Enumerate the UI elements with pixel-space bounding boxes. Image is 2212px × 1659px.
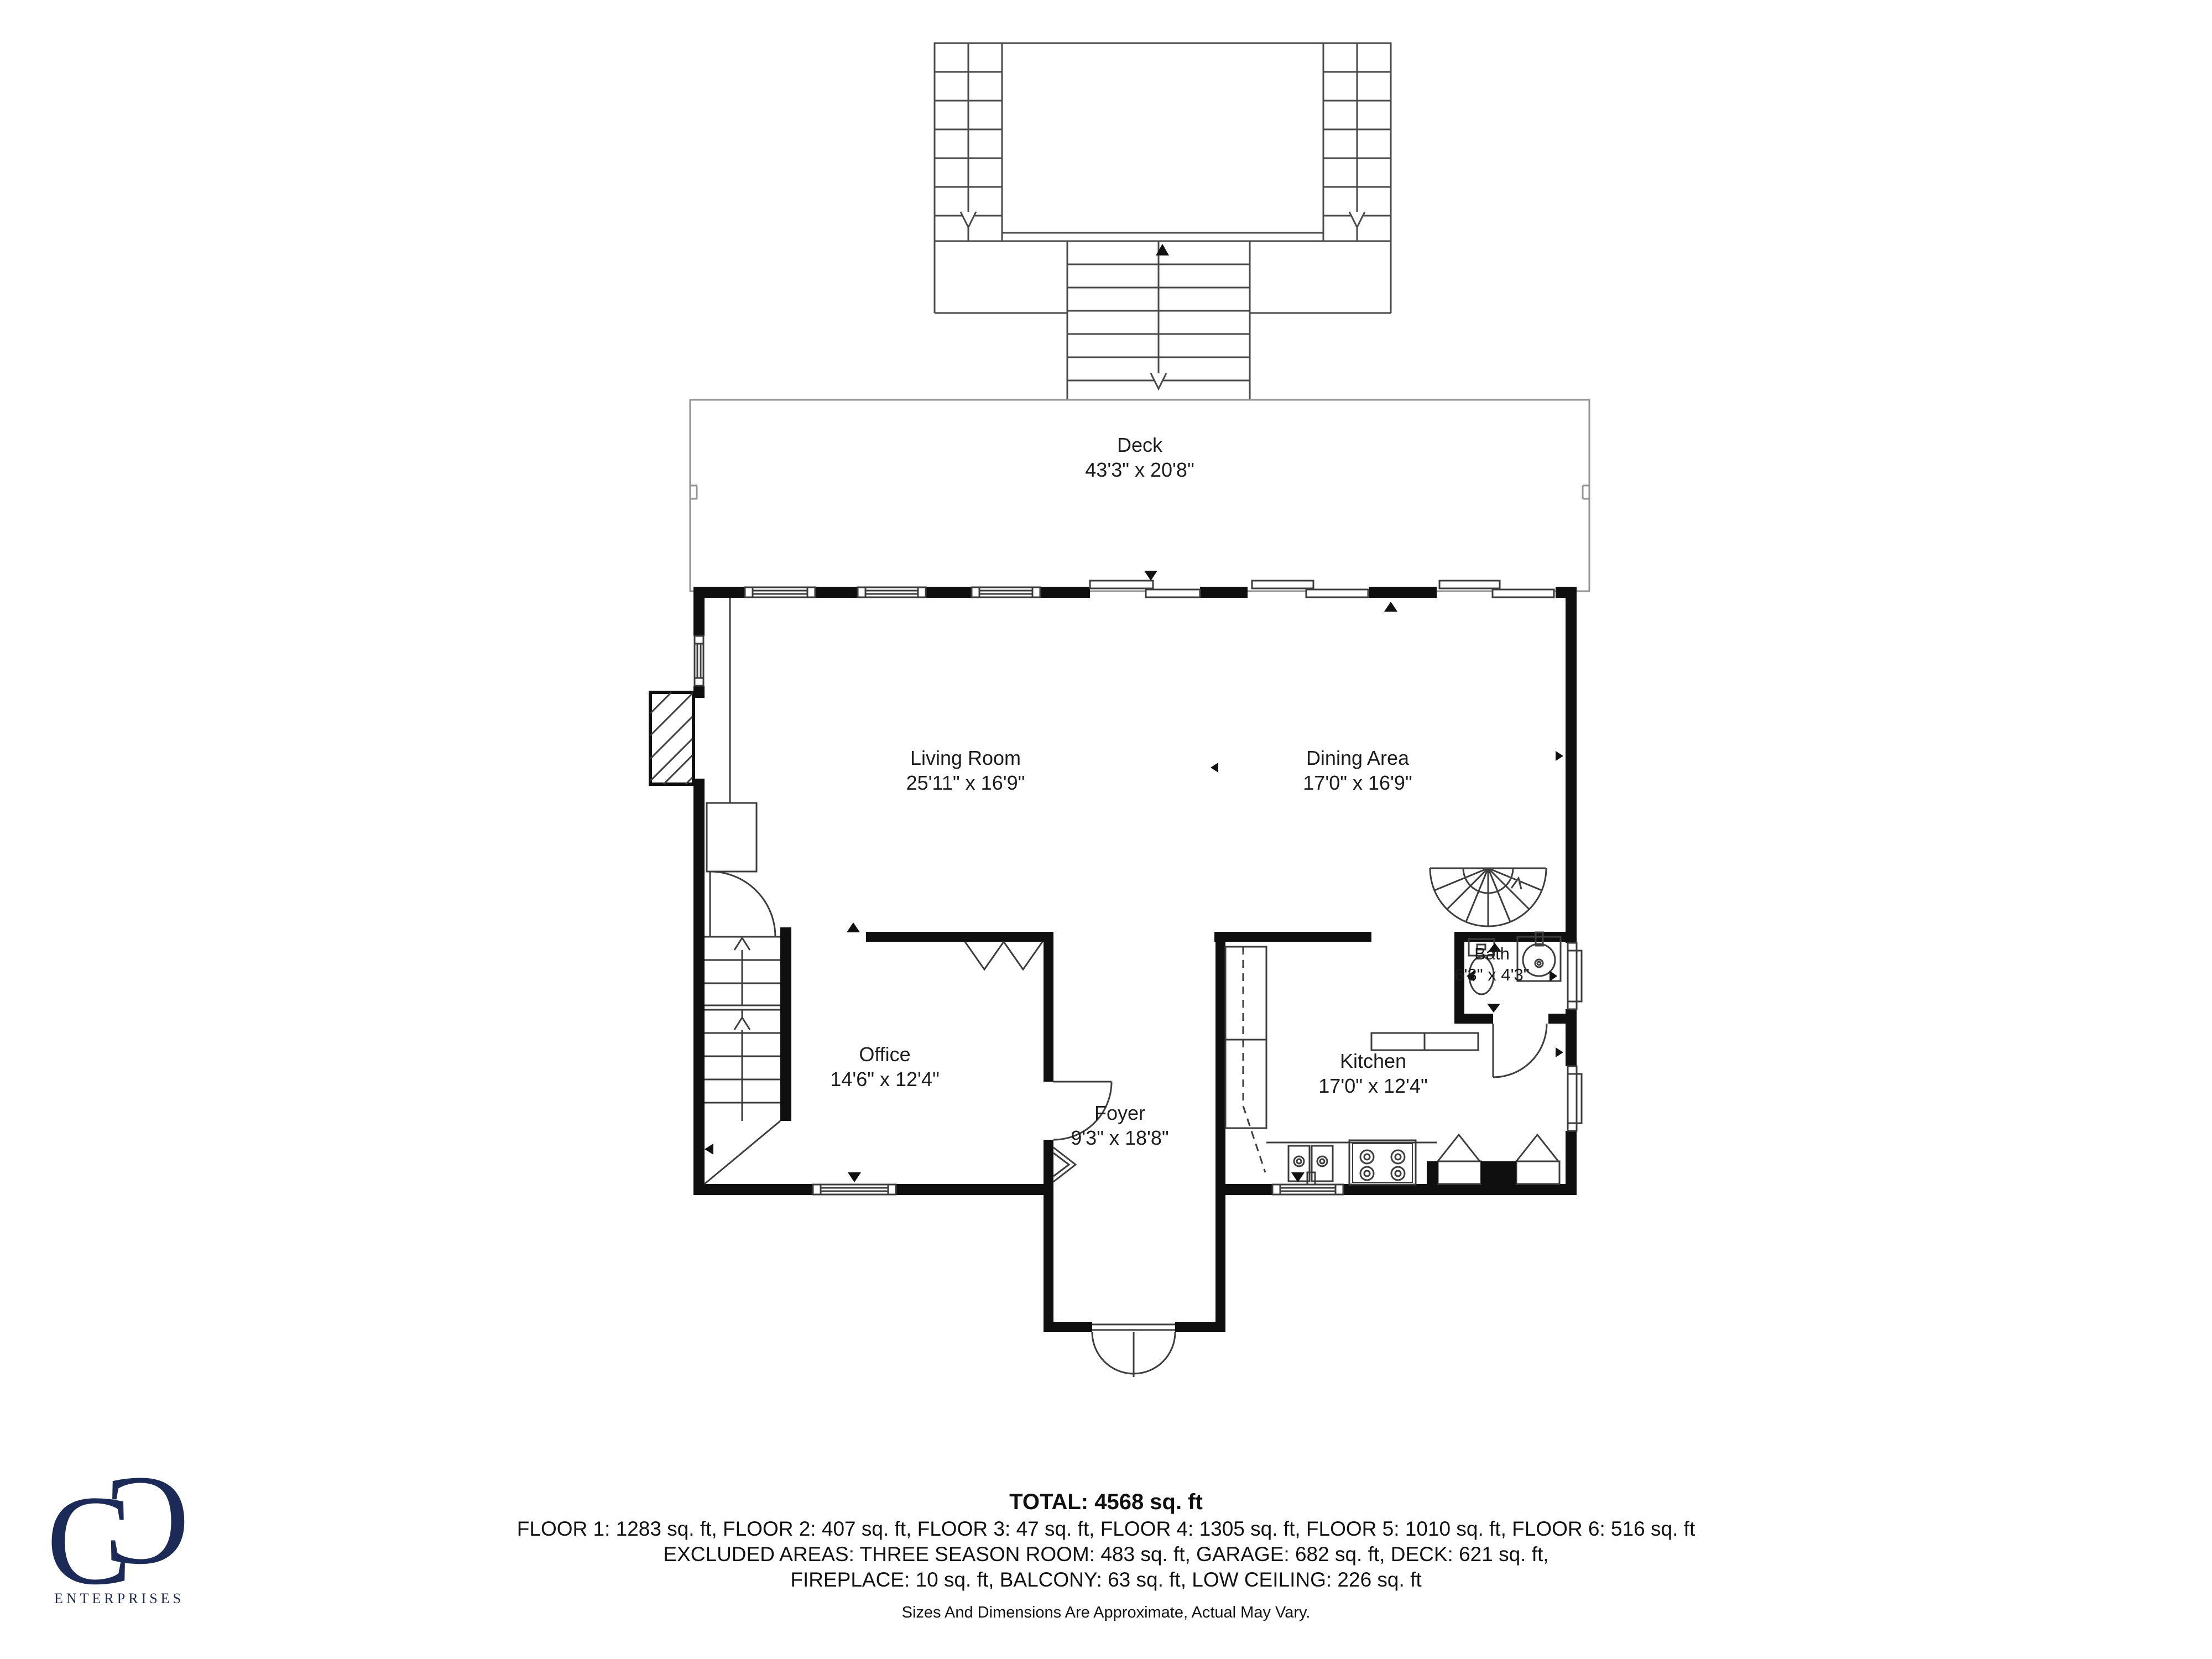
- main-exterior-staircase: [1067, 241, 1250, 400]
- balcony: [1002, 43, 1323, 241]
- company-logo: C C ENTERPRISES: [39, 1454, 216, 1631]
- entry-threshold: [1092, 1324, 1175, 1330]
- room-label-bath: Bath 6'3" x 4'3": [1454, 943, 1530, 985]
- room-label-living-room: Living Room 25'11" x 16'9": [906, 745, 1025, 795]
- peninsula-counter: [1371, 1033, 1478, 1050]
- room-dims: 9'3" x 18'8": [1071, 1125, 1168, 1150]
- marker-window-left-down: [848, 1172, 861, 1182]
- sliding-door-2: [1252, 581, 1368, 597]
- marker-office-opening: [847, 922, 860, 932]
- floorplan-drawing: [0, 0, 2212, 1659]
- marker-stairs-left: [705, 1144, 713, 1155]
- marker-livingroom-up: [1384, 602, 1397, 612]
- room-dims: 17'0" x 12'4": [1318, 1073, 1427, 1098]
- sliding-door-1: [1090, 581, 1200, 597]
- bath-door-arc: [1493, 1024, 1547, 1077]
- window-west: [695, 636, 703, 686]
- room-name: Kitchen: [1318, 1048, 1427, 1073]
- pantry-bifold-doors: [1427, 1135, 1559, 1184]
- summary-floors: FLOOR 1: 1283 sq. ft, FLOOR 2: 407 sq. f…: [517, 1517, 1695, 1541]
- refrigerator-pantry: [1225, 947, 1266, 1172]
- stair-door-arc: [710, 872, 775, 937]
- marker-deck-door-down: [1144, 571, 1157, 581]
- entry-door-arc: [1092, 1332, 1175, 1377]
- basement-staircase: [705, 803, 780, 1184]
- room-name: Living Room: [906, 745, 1025, 770]
- upper-right-staircase: [1323, 43, 1391, 241]
- deck-outline: [690, 400, 1589, 591]
- stove: [1349, 1140, 1416, 1185]
- window-top-2: [858, 587, 926, 597]
- upper-balcony-structure: [935, 43, 1391, 400]
- marker-bath-right: [1550, 971, 1557, 982]
- office-closet-bifold-doors: [965, 942, 1042, 969]
- window-kitchen-east: [1568, 1066, 1582, 1131]
- logo-company-name: ENTERPRISES: [54, 1590, 184, 1607]
- room-name: Office: [830, 1042, 939, 1067]
- exterior-walls: [693, 587, 1577, 1332]
- room-dims: 6'3" x 4'3": [1454, 964, 1530, 985]
- window-kitchen-bottom: [1272, 1185, 1343, 1194]
- room-name: Dining Area: [1303, 745, 1412, 770]
- marker-dining-left: [1211, 763, 1218, 773]
- marker-dining-right: [1556, 751, 1563, 761]
- summary-excluded-2: FIREPLACE: 10 sq. ft, BALCONY: 63 sq. ft…: [790, 1568, 1421, 1592]
- summary-disclaimer: Sizes And Dimensions Are Approximate, Ac…: [902, 1604, 1311, 1622]
- logo-monogram-c-right: C: [104, 1456, 190, 1584]
- room-name: Bath: [1454, 943, 1530, 964]
- room-name: Deck: [1085, 432, 1194, 457]
- room-label-office: Office 14'6" x 12'4": [830, 1042, 939, 1092]
- sliding-door-3: [1439, 581, 1554, 597]
- summary-excluded-1: EXCLUDED AREAS: THREE SEASON ROOM: 483 s…: [663, 1543, 1548, 1566]
- window-bath-east: [1568, 943, 1582, 1009]
- windows: [695, 581, 1582, 1330]
- foyer-closet-bifold-doors: [1053, 1147, 1076, 1182]
- summary-total: TOTAL: 4568 sq. ft: [1009, 1490, 1203, 1515]
- room-dims: 25'11" x 16'9": [906, 770, 1025, 795]
- room-label-dining-area: Dining Area 17'0" x 16'9": [1303, 745, 1412, 795]
- spiral-staircase: [1430, 868, 1546, 926]
- room-dims: 17'0" x 16'9": [1303, 770, 1412, 795]
- fireplace: [650, 692, 693, 784]
- room-name: Foyer: [1071, 1100, 1168, 1125]
- room-label-deck: Deck 43'3" x 20'8": [1085, 432, 1194, 482]
- room-dims: 43'3" x 20'8": [1085, 457, 1194, 482]
- stair-closet: [707, 803, 757, 872]
- floorplan-page: Deck 43'3" x 20'8" Living Room 25'11" x …: [0, 0, 2212, 1659]
- marker-kitchen-right: [1556, 1047, 1563, 1057]
- room-dims: 14'6" x 12'4": [830, 1067, 939, 1092]
- room-label-foyer: Foyer 9'3" x 18'8": [1071, 1100, 1168, 1150]
- deck-edge-ticks: [690, 486, 1589, 499]
- marker-bath-down: [1487, 1004, 1500, 1013]
- window-top-1: [745, 587, 815, 597]
- kitchen-sink: [1288, 1146, 1333, 1185]
- room-label-kitchen: Kitchen 17'0" x 12'4": [1318, 1048, 1427, 1098]
- upper-left-staircase: [935, 43, 1002, 241]
- window-bottom-left: [813, 1185, 896, 1194]
- window-top-3: [972, 587, 1040, 597]
